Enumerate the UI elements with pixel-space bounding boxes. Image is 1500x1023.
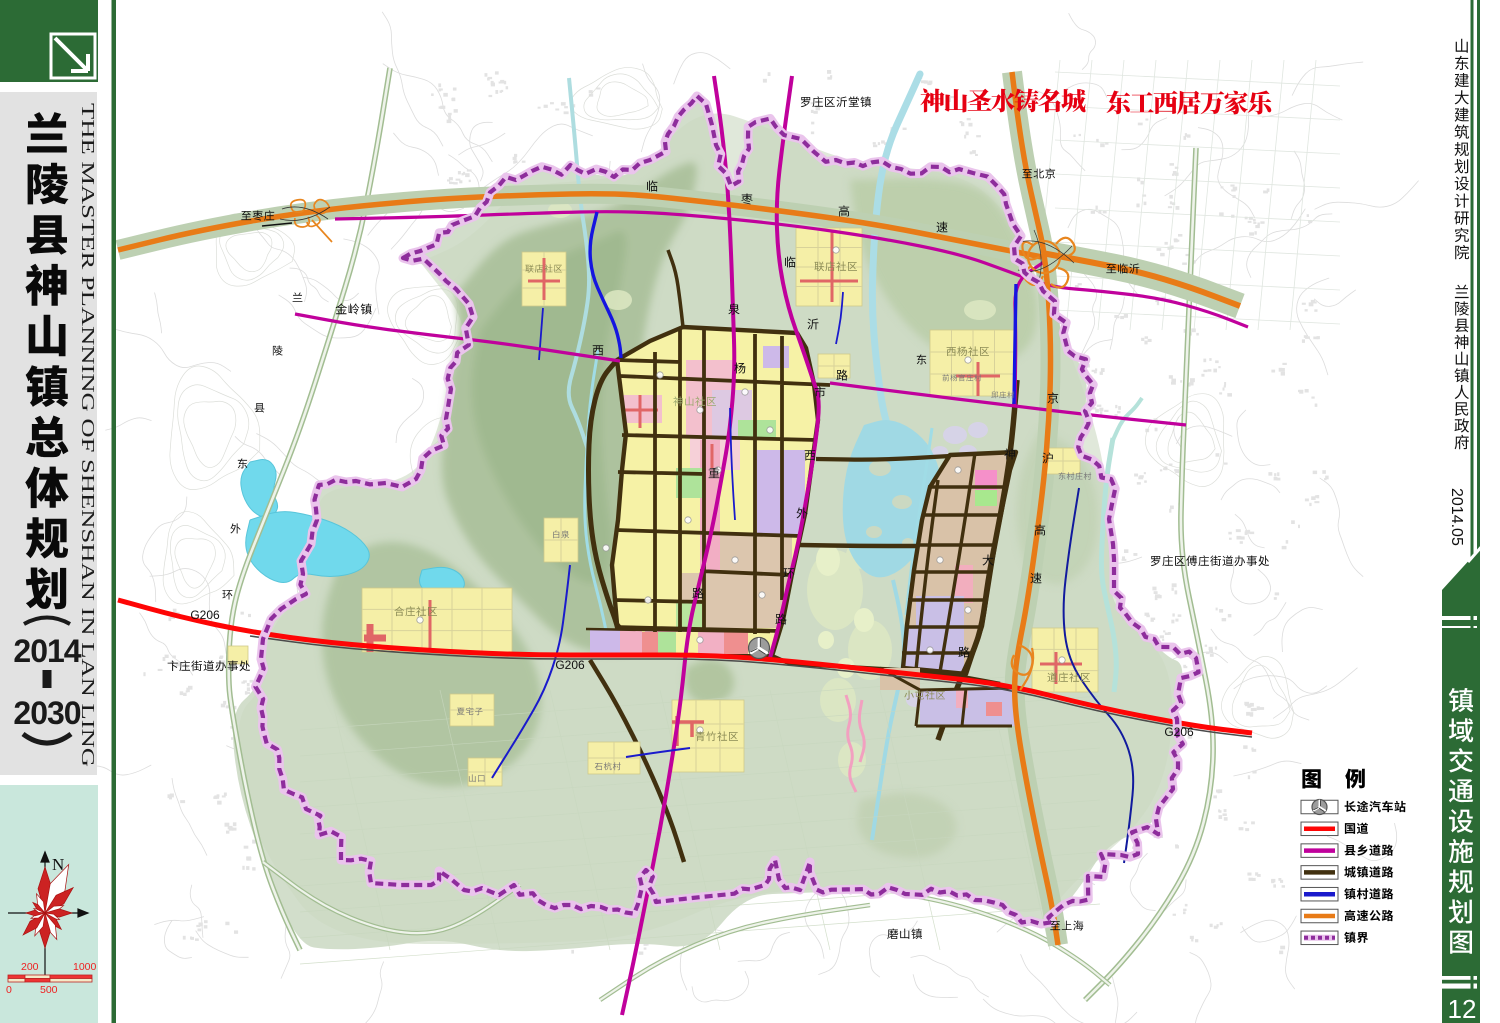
svg-text:12: 12 bbox=[1448, 994, 1477, 1023]
svg-text:1000: 1000 bbox=[73, 961, 97, 973]
svg-text:0: 0 bbox=[6, 984, 12, 996]
svg-text:2014: 2014 bbox=[13, 633, 81, 669]
svg-text:2014.05: 2014.05 bbox=[1448, 488, 1465, 546]
svg-text:500: 500 bbox=[40, 984, 58, 996]
svg-text:G206: G206 bbox=[190, 608, 220, 622]
svg-text:2030: 2030 bbox=[13, 695, 80, 731]
svg-text:THE MASTER PLANNING OF SHENSHA: THE MASTER PLANNING OF SHENSHAN IN LAN L… bbox=[78, 103, 98, 768]
svg-text:G206: G206 bbox=[1164, 725, 1194, 739]
svg-text:200: 200 bbox=[21, 961, 39, 973]
svg-text:N: N bbox=[52, 855, 64, 874]
svg-text:G206: G206 bbox=[555, 658, 585, 672]
